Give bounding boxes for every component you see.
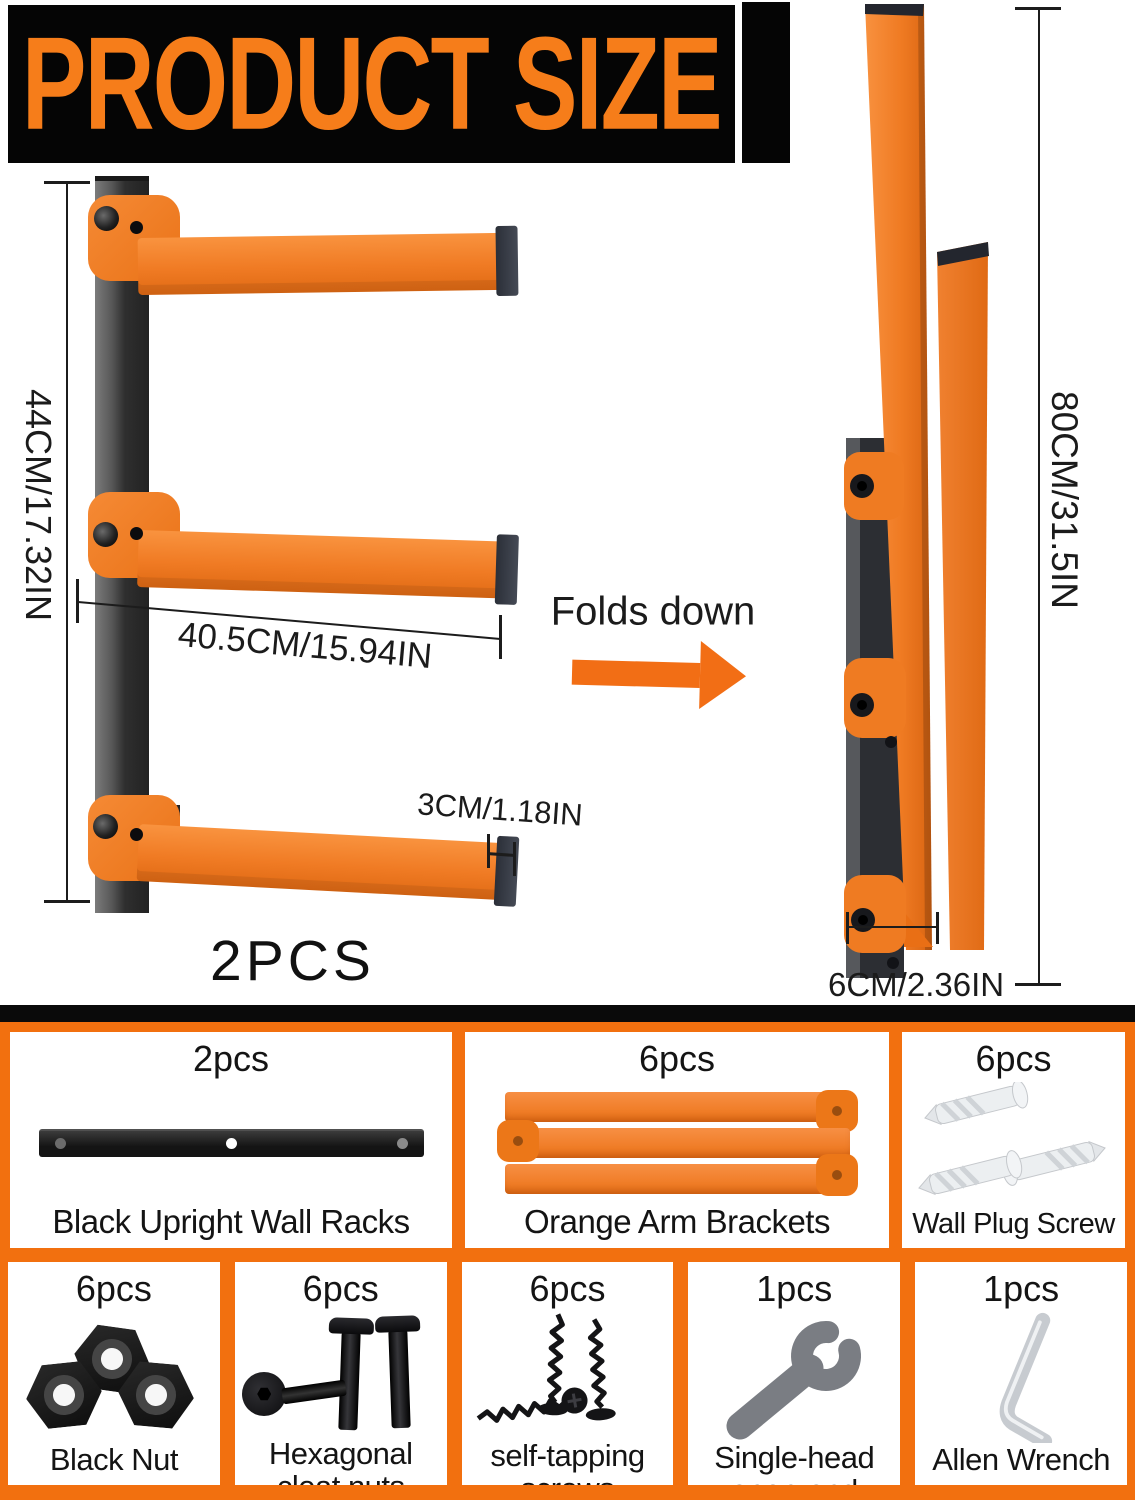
dim-tick xyxy=(76,579,79,623)
dim-tick xyxy=(44,181,90,184)
quantity-label: 2PCS xyxy=(210,928,375,994)
dim-tick xyxy=(1015,983,1061,986)
part-qty: 6pcs xyxy=(639,1038,715,1080)
allen-wrench-icon xyxy=(917,1310,1125,1444)
part-qty: 1pcs xyxy=(756,1268,832,1310)
arm-length-dimension: 40.5CM/15.94IN xyxy=(176,615,433,677)
dim-tick xyxy=(936,912,939,944)
folded-arm-back xyxy=(937,242,988,950)
product-size-infographic: PRODUCT SIZE 44CM/17.32IN 40.5CM/15.94IN… xyxy=(0,0,1135,1500)
parts-grid-row-2: 6pcs Black Nut 6pcs Hexagonal xyxy=(8,1262,1127,1485)
part-name: Black Upright Wall Racks xyxy=(52,1205,409,1240)
part-cell-wrench: 1pcs Single-head open-end wrench xyxy=(688,1262,900,1485)
rack-arm-top xyxy=(138,233,507,295)
grid-top-divider xyxy=(0,1005,1135,1022)
parts-grid-row-1: 2pcs Black Upright Wall Racks 6pcs Orang… xyxy=(10,1032,1125,1248)
arm-thickness-dimension: 3CM/1.18IN xyxy=(416,786,584,833)
dim-tick xyxy=(513,842,516,876)
part-name: self-tapping screws xyxy=(464,1440,672,1485)
hinge-bolt-icon xyxy=(93,522,118,547)
part-name: Single-head open-end wrench xyxy=(690,1442,898,1485)
part-qty: 6pcs xyxy=(76,1268,152,1310)
part-name: Allen Wrench xyxy=(932,1444,1110,1477)
part-name: Wall Plug Screw xyxy=(912,1209,1115,1240)
mount-hole-icon xyxy=(130,527,143,540)
dim-tick xyxy=(44,900,90,903)
hinge-bolt-icon xyxy=(93,814,118,839)
arrow-shaft xyxy=(572,660,701,688)
part-qty: 1pcs xyxy=(983,1268,1059,1310)
dim-tick xyxy=(1015,7,1061,10)
part-name: Orange Arm Brackets xyxy=(524,1205,830,1240)
part-cell-black-nut: 6pcs Black Nut xyxy=(8,1262,220,1485)
part-cell-allen-wrench: 1pcs Allen Wrench xyxy=(915,1262,1127,1485)
part-cell-upright-racks: 2pcs Black Upright Wall Racks xyxy=(10,1032,452,1248)
banner-end-block xyxy=(742,2,790,163)
dim-tick xyxy=(846,912,849,944)
part-qty: 6pcs xyxy=(975,1038,1051,1080)
rack-arm-bottom xyxy=(137,824,507,900)
folded-height-dimension: 80CM/31.5IN xyxy=(1043,391,1085,609)
cleat-bolt-icon xyxy=(237,1310,445,1438)
arrow-head xyxy=(699,641,747,710)
height-dim-line xyxy=(66,183,68,903)
mount-hole-icon xyxy=(130,828,143,841)
left-height-dimension: 44CM/17.32IN xyxy=(17,389,59,621)
part-name: Hexagonal cleat nuts xyxy=(237,1438,445,1485)
dim-tick xyxy=(499,615,502,659)
mount-hole-icon xyxy=(130,221,143,234)
title-banner: PRODUCT SIZE xyxy=(8,5,735,163)
part-cell-cleat-nuts: 6pcs Hexagonal cleat nuts xyxy=(235,1262,447,1485)
rack-arm-middle xyxy=(137,530,507,599)
wall-plug-icon xyxy=(904,1080,1123,1209)
part-qty: 6pcs xyxy=(529,1268,605,1310)
dim-tick xyxy=(487,834,490,868)
right-arrow-icon xyxy=(571,638,753,713)
wrench-icon xyxy=(690,1310,898,1442)
part-cell-arm-brackets: 6pcs Orange Arm Brackets xyxy=(465,1032,889,1248)
part-qty: 6pcs xyxy=(303,1268,379,1310)
part-cell-wall-plugs: 6pcs xyxy=(902,1032,1125,1248)
depth-dim-line xyxy=(847,926,937,928)
part-qty: 2pcs xyxy=(193,1038,269,1080)
mount-hole-icon xyxy=(885,736,897,748)
folded-height-dim-line xyxy=(1038,8,1040,985)
part-name: Black Nut xyxy=(50,1444,178,1477)
screw-icon xyxy=(464,1310,672,1440)
folds-down-label: Folds down xyxy=(551,590,756,635)
folded-depth-dimension: 6CM/2.36IN xyxy=(828,966,1004,1004)
part-cell-screws: 6pcs xyxy=(462,1262,674,1485)
folded-rack-illustration xyxy=(818,0,1018,1010)
orange-arm-brackets-icon xyxy=(467,1080,887,1205)
page-title: PRODUCT SIZE xyxy=(22,8,721,160)
hinge-bolt-icon xyxy=(94,206,119,231)
hex-nut-icon xyxy=(10,1310,218,1444)
black-upright-rack-icon xyxy=(12,1080,450,1205)
